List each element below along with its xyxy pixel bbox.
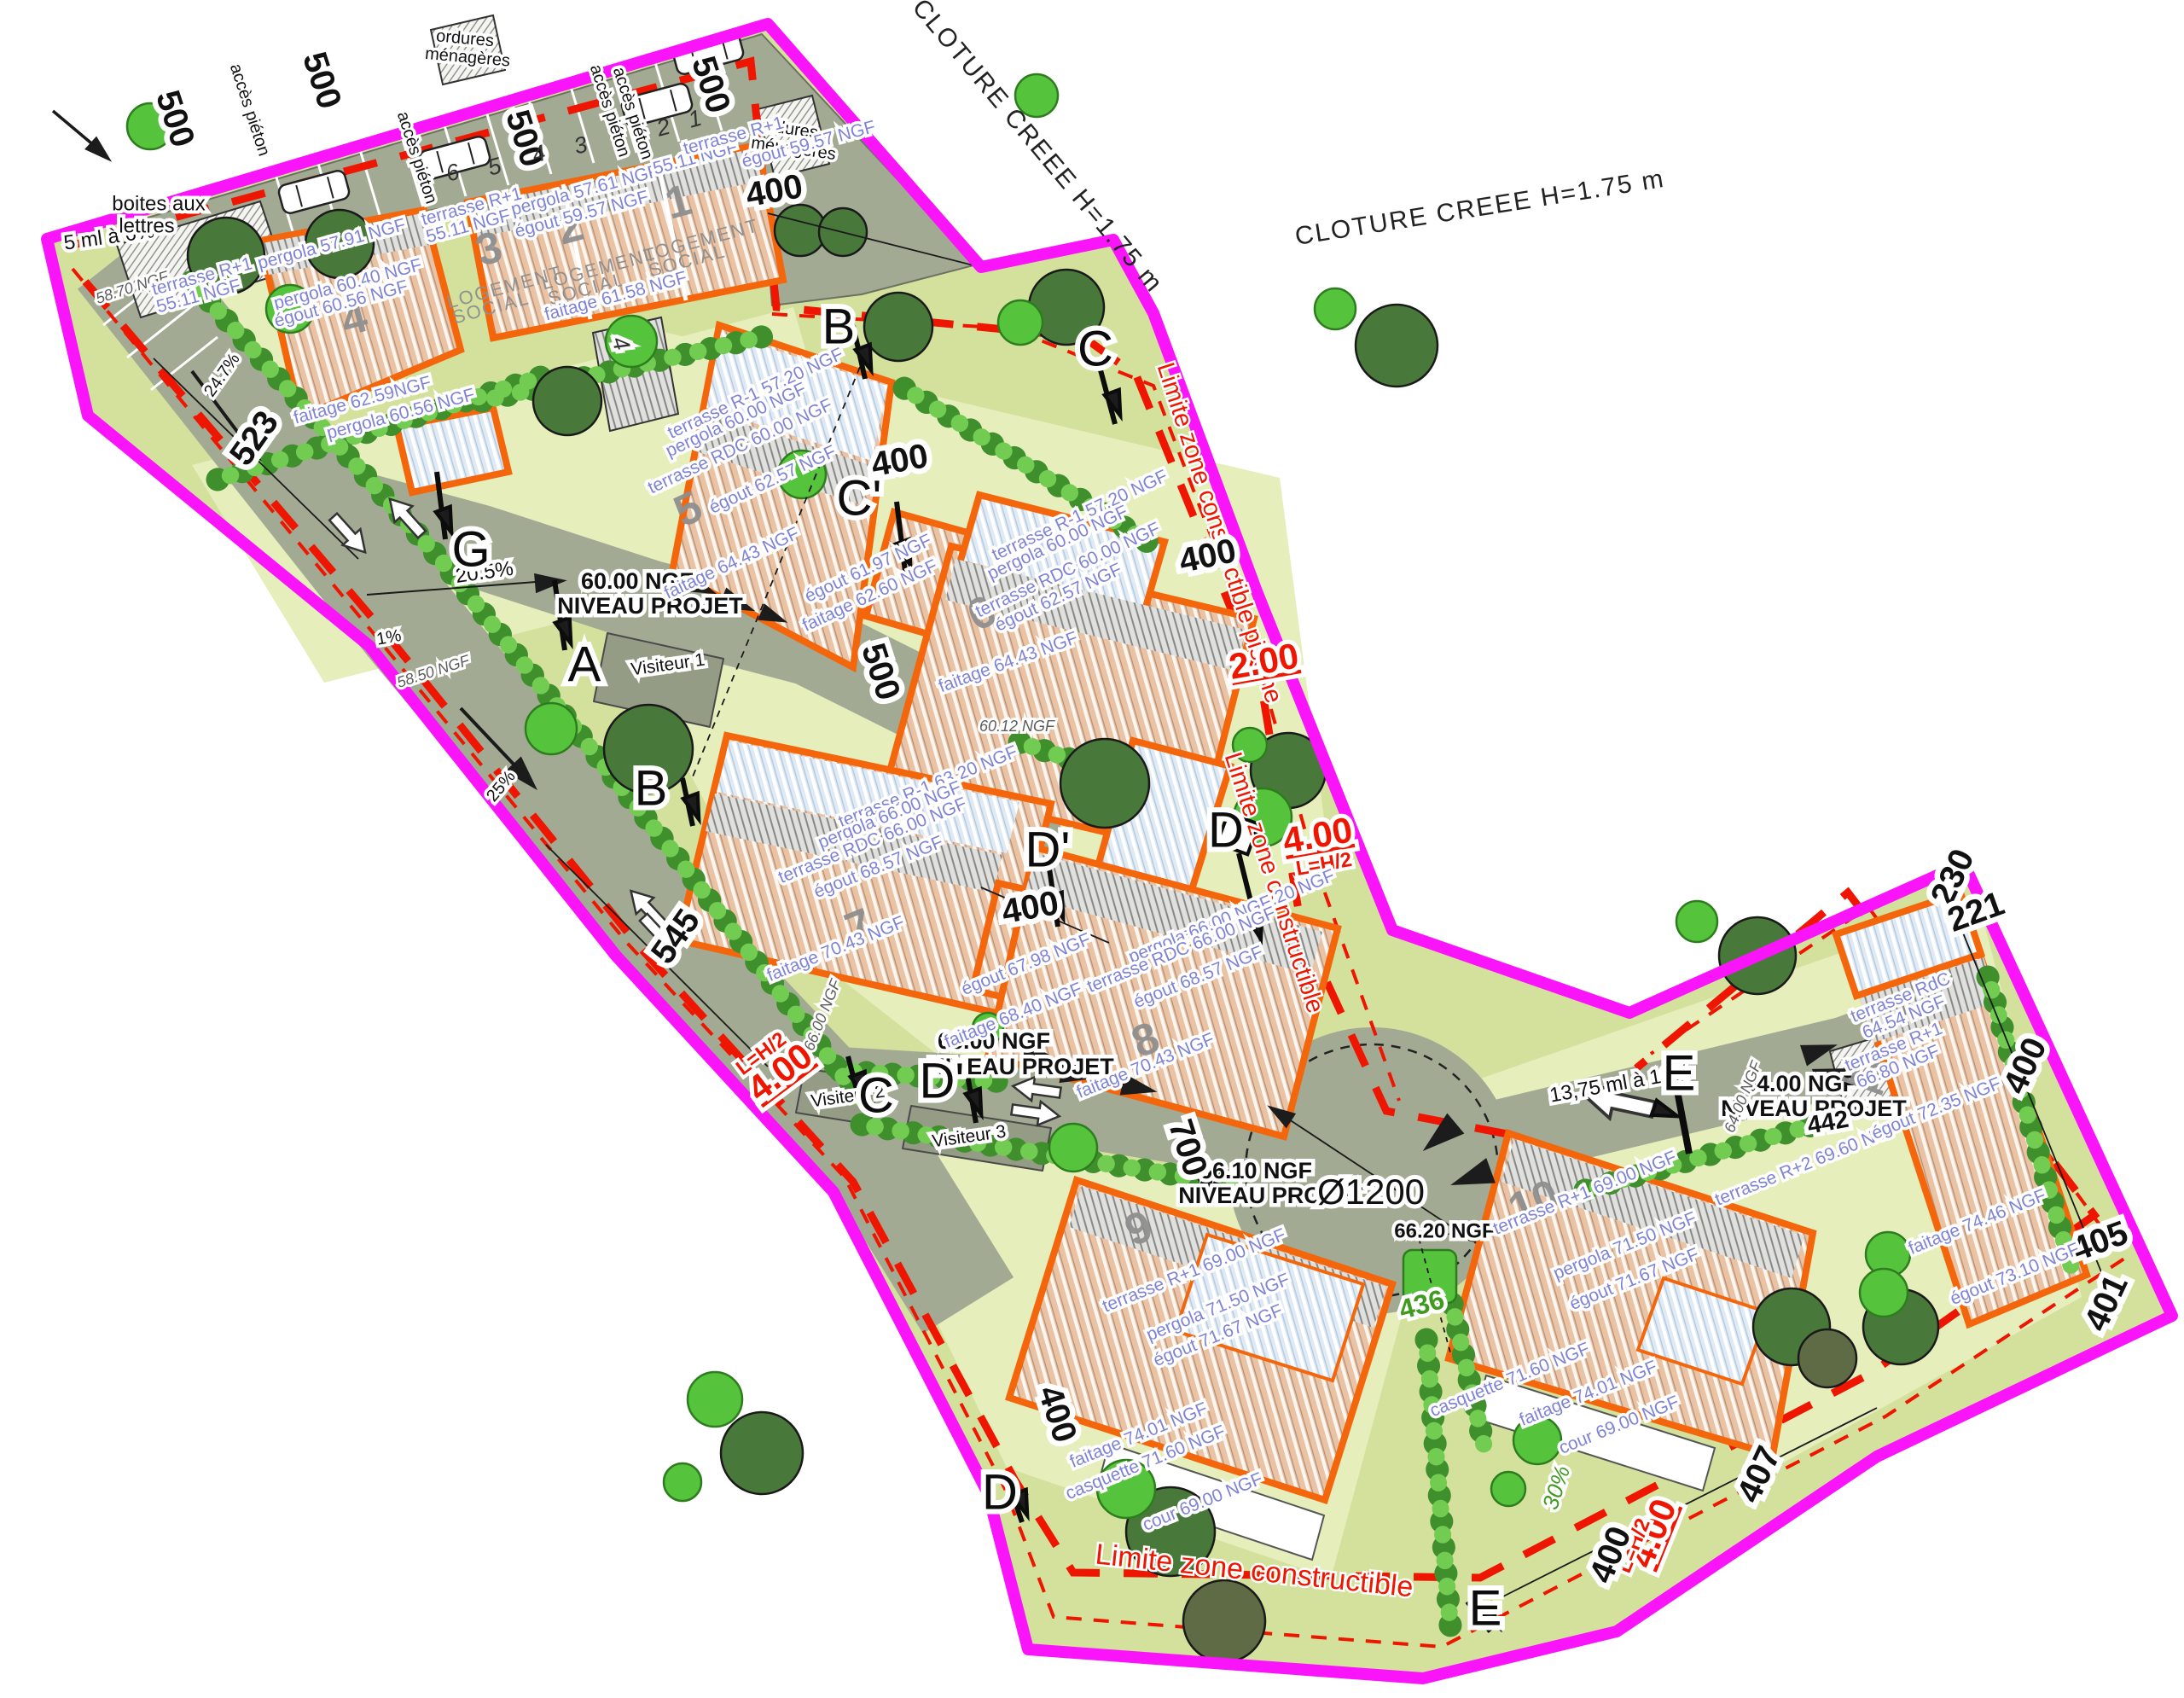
label-small-black: accès piéton — [226, 61, 274, 159]
label-section-letter: G — [451, 521, 490, 577]
label-section-letter: A — [568, 637, 601, 692]
site-plan: CLOTURE CREEE H=1.75 mCLOTURE CREEE H=1.… — [0, 0, 2184, 1698]
label-section-letter: D — [982, 1464, 1018, 1520]
label-section-letter: C — [858, 1067, 894, 1123]
label-section-letter: D — [1208, 802, 1244, 858]
label-section-letter: C — [1077, 321, 1113, 376]
label-black-bold-sm: 66.20 NGF — [1394, 1219, 1494, 1242]
label-black-bold: NIVEAU PROJET — [557, 593, 743, 619]
label-small-black-lg: lettres — [119, 214, 174, 237]
label-section-letter: C' — [837, 470, 882, 526]
label-dim: 500 — [295, 48, 348, 113]
label-section-letter: E — [1663, 1045, 1696, 1101]
label-cloture: CLOTURE CREEE H=1.75 m — [1293, 165, 1667, 251]
label-section-letter: D' — [920, 1053, 965, 1108]
label-section-letter: D' — [1025, 822, 1071, 877]
label-gray-sm: 60.12 NGF — [979, 718, 1055, 735]
label-black-bold: 66.10 NGF — [1199, 1158, 1312, 1183]
label-dia: Ø1200 — [1317, 1172, 1425, 1212]
label-section-letter: E — [1469, 1580, 1502, 1636]
label-section-letter: B — [635, 760, 668, 816]
label-small-black-lg: boites aux — [112, 192, 205, 215]
